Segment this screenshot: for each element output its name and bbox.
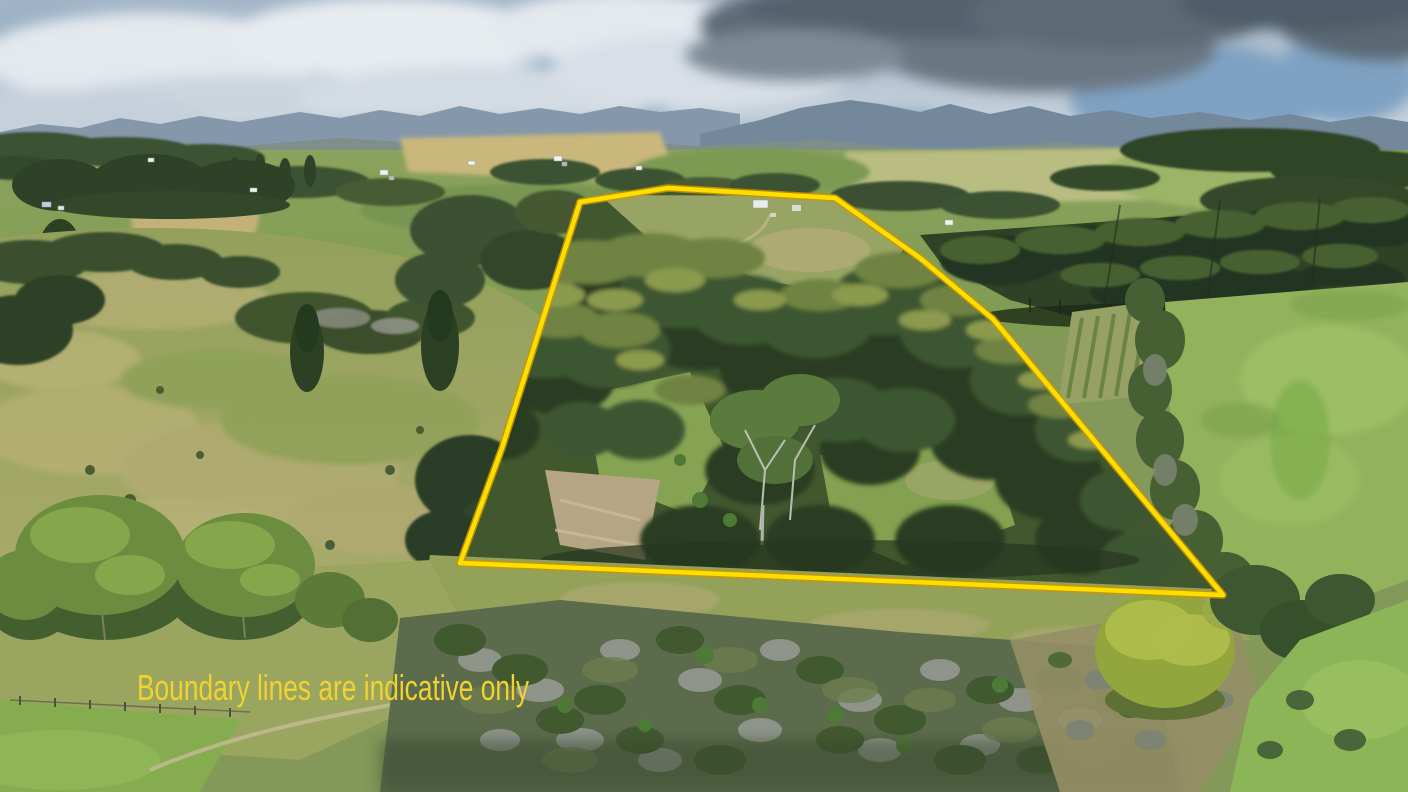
photo-canvas: Boundary lines are indicative only bbox=[0, 0, 1408, 792]
caption-text: Boundary lines are indicative only bbox=[137, 667, 529, 708]
aerial-property-photo: Boundary lines are indicative only bbox=[0, 0, 1408, 792]
